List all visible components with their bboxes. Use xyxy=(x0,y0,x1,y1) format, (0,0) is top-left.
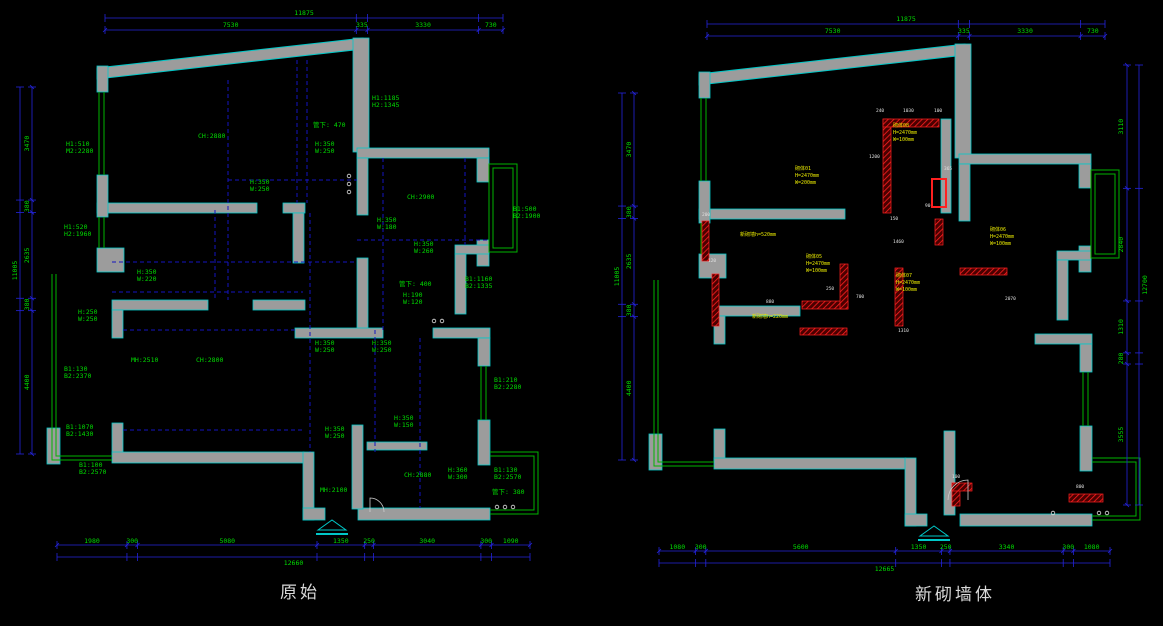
small-dim-tag: 1200 xyxy=(869,154,880,160)
small-dim-tag: 880 xyxy=(766,299,774,305)
wall-segment xyxy=(1079,164,1091,188)
wall-segment xyxy=(959,154,1091,164)
wall-segment xyxy=(955,44,971,158)
wall-segment xyxy=(97,203,257,213)
entry-door-symbol xyxy=(318,520,346,530)
new-wall-segment xyxy=(702,221,709,261)
exterior-wall-sloped xyxy=(699,44,965,85)
dimension-value: 12660 xyxy=(284,559,304,567)
annotation-label: H:350W:250 xyxy=(325,425,345,440)
new-wall-label: 砌体07H=2470mmW=100mm xyxy=(896,272,920,293)
small-dim-tag: 240 xyxy=(876,108,884,114)
dimension-value: 5600 xyxy=(793,543,809,551)
annotation-label: H:360W:300 xyxy=(448,466,468,481)
fixture-dot xyxy=(495,505,499,509)
dimension-value: 730 xyxy=(485,21,497,29)
wall-segment xyxy=(699,72,710,98)
fixture-dot xyxy=(1097,511,1101,515)
annotation-label: CH:2900 xyxy=(407,193,434,201)
balcony-line xyxy=(654,280,714,466)
small-dim-tag: 150 xyxy=(890,216,898,222)
dimension-value: 380 xyxy=(23,200,31,212)
small-dim-tag: 200 xyxy=(702,212,710,218)
annotation-label: MH:2510 xyxy=(131,356,158,364)
small-dim-tag: 1460 xyxy=(893,239,904,245)
dimension-value: 4400 xyxy=(625,380,633,396)
wall-segment xyxy=(353,38,369,152)
wall-segment xyxy=(1080,426,1092,471)
small-dim-tag: 365 xyxy=(944,166,952,172)
wall-segment xyxy=(1057,260,1068,320)
dimension-value: 300 xyxy=(126,537,138,545)
wall-segment xyxy=(699,209,845,219)
small-dim-tag: 250 xyxy=(826,286,834,292)
annotation-label: H:350W:220 xyxy=(137,268,157,283)
dimension-value: 2840 xyxy=(1117,237,1125,253)
balcony-line xyxy=(1092,458,1140,520)
annotation-label: 管下: 400 xyxy=(399,279,432,288)
exterior-wall-sloped xyxy=(97,38,363,79)
annotation-label: B1:1160B2:1335 xyxy=(465,275,492,290)
dimension-value: 2635 xyxy=(625,253,633,269)
new-wall-label: 新砌墙h=220mm xyxy=(752,313,788,320)
new-wall-segment xyxy=(883,119,891,213)
plan-title-original: 原始 xyxy=(240,578,360,603)
new-wall-label: 砌体05H=2470mmW=100mm xyxy=(806,253,830,274)
annotation-label: MH:2100 xyxy=(320,486,347,494)
wall-segment xyxy=(112,423,123,455)
wall-segment xyxy=(714,458,906,469)
dimension-value: 300 xyxy=(695,543,707,551)
dimension-value: 11005 xyxy=(11,261,19,281)
dimension-value: 3340 xyxy=(999,543,1015,551)
plan-title-newwalls: 新砌墙体 xyxy=(890,580,1020,605)
wall-segment xyxy=(295,328,383,338)
wall-segment xyxy=(905,514,927,526)
wall-segment xyxy=(433,328,490,338)
new-wall-segment xyxy=(712,274,719,326)
wall-segment xyxy=(959,164,970,221)
dimension-value: 11875 xyxy=(896,15,916,23)
dimension-value: 250 xyxy=(363,537,375,545)
new-wall-segment xyxy=(935,219,943,245)
dimension-value: 1080 xyxy=(1084,543,1100,551)
cad-drawing-canvas: 7530335333073011875347038026353804400110… xyxy=(0,0,1163,626)
wall-segment xyxy=(253,300,305,310)
dimension-value: 3555 xyxy=(1117,427,1125,443)
annotation-label: H:350W:250 xyxy=(315,140,335,155)
dimension-value: 11875 xyxy=(294,9,314,17)
dimension-value: 380 xyxy=(625,305,633,317)
annotation-label: CH:2800 xyxy=(196,356,223,364)
dimension-value: 4400 xyxy=(23,374,31,390)
fixture-dot xyxy=(347,174,351,178)
wall-segment xyxy=(357,158,368,215)
fixture-dot xyxy=(432,319,436,323)
wall-segment xyxy=(97,175,108,217)
dimension-value: 1090 xyxy=(503,537,519,545)
new-wall-segment xyxy=(800,328,847,335)
annotation-label: H:350W:180 xyxy=(377,216,397,231)
annotation-label: H:350W:260 xyxy=(414,240,434,255)
new-wall-segment xyxy=(952,483,972,491)
wall-segment xyxy=(1080,344,1092,372)
wall-segment xyxy=(283,203,305,213)
wall-segment xyxy=(478,420,490,465)
annotation-label: H:350W:250 xyxy=(372,339,392,354)
balcony-line xyxy=(658,280,714,462)
dimension-value: 730 xyxy=(1087,27,1099,35)
fixture-dot xyxy=(1105,511,1109,515)
dimension-value: 280 xyxy=(1117,353,1125,365)
annotation-label: CH:2880 xyxy=(198,132,225,140)
small-dim-tag: 100 xyxy=(934,108,942,114)
new-wall-label: 砌体06H=2470mmW=100mm xyxy=(990,226,1014,247)
annotation-label: B1:500B2:1900 xyxy=(513,205,540,220)
annotation-label: H:250W:250 xyxy=(78,308,98,323)
wall-segment xyxy=(303,508,325,520)
new-wall-label: 砌体01H=2470mmW=200mm xyxy=(795,165,819,186)
wall-segment xyxy=(112,452,304,463)
annotation-label: B1:130B2:2570 xyxy=(494,466,521,481)
small-dim-tag: 700 xyxy=(856,294,864,300)
annotation-label: H1:520H2:1960 xyxy=(64,223,91,238)
new-wall-segment xyxy=(883,119,939,127)
fixture-dot xyxy=(347,182,351,186)
fixture-dot xyxy=(503,505,507,509)
wall-segment xyxy=(367,442,427,450)
small-dim-tag: 1310 xyxy=(898,328,909,334)
annotation-label: H1:510M2:2280 xyxy=(66,140,93,155)
dimension-value: 335 xyxy=(958,27,970,35)
annotation-label: B1:1070B2:1430 xyxy=(66,423,93,438)
balcony-line xyxy=(490,452,538,514)
cad-screenshot: { "titles": { "left": "原始", "right": "新砌… xyxy=(0,0,1163,626)
annotation-label: H:190W:120 xyxy=(403,291,423,306)
wall-segment xyxy=(352,425,363,509)
wall-segment xyxy=(358,508,490,520)
dimension-value: 1080 xyxy=(669,543,685,551)
dimension-value: 5080 xyxy=(219,537,235,545)
wall-segment xyxy=(714,429,725,461)
fixture-dot xyxy=(511,505,515,509)
wall-segment xyxy=(357,148,489,158)
dimension-value: 7530 xyxy=(223,21,239,29)
wall-segment xyxy=(112,310,123,338)
annotation-label: H:350W:150 xyxy=(394,414,414,429)
dimension-value: 1310 xyxy=(1117,319,1125,335)
dimension-value: 335 xyxy=(356,21,368,29)
dimension-value: 3330 xyxy=(1017,27,1033,35)
wall-segment xyxy=(455,245,489,254)
dimension-value: 1980 xyxy=(84,537,100,545)
annotation-label: B1:210B2:2280 xyxy=(494,376,521,391)
drawing-content: 7530335333073011875347038026353804400110… xyxy=(11,9,1149,573)
dimension-value: 2635 xyxy=(23,247,31,263)
small-dim-tag: 120 xyxy=(708,258,716,264)
dimension-value: 3040 xyxy=(419,537,435,545)
annotation-label: 管下: 470 xyxy=(313,120,346,129)
entry-door-symbol xyxy=(920,526,948,536)
balcony-line xyxy=(1092,462,1136,516)
dimension-value: 250 xyxy=(940,543,952,551)
wall-segment xyxy=(293,213,304,263)
dimension-value: 11005 xyxy=(613,267,621,287)
wall-segment xyxy=(1035,334,1092,344)
annotation-label: H1:1185H2:1345 xyxy=(372,94,399,109)
wall-segment xyxy=(649,434,662,470)
wall-segment xyxy=(477,158,489,182)
annotation-label: H:350W:250 xyxy=(315,339,335,354)
dimension-value: 3110 xyxy=(1117,119,1125,135)
annotation-label: B1:100B2:2570 xyxy=(79,461,106,476)
new-wall-segment xyxy=(840,264,848,309)
wall-segment xyxy=(112,300,208,310)
small-dim-tag: 1030 xyxy=(903,108,914,114)
wall-segment xyxy=(357,258,368,330)
wall-segment xyxy=(97,248,124,272)
bay-window xyxy=(493,168,513,248)
wall-segment xyxy=(97,66,108,92)
dimension-value: 12700 xyxy=(1141,275,1149,295)
dimension-value: 380 xyxy=(625,206,633,218)
dimension-value: 3470 xyxy=(625,142,633,158)
dimension-value: 300 xyxy=(480,537,492,545)
annotation-label: H:350W:250 xyxy=(250,178,270,193)
new-wall-segment xyxy=(960,268,1007,275)
small-dim-tag: 800 xyxy=(1076,484,1084,490)
new-wall-label: 新砌墙h=520mm xyxy=(740,231,776,238)
dimension-value: 380 xyxy=(23,299,31,311)
dimension-value: 7530 xyxy=(825,27,841,35)
small-dim-tag: 2070 xyxy=(1005,296,1016,302)
dimension-value: 3330 xyxy=(415,21,431,29)
wall-segment xyxy=(960,514,1092,526)
fixture-dot xyxy=(440,319,444,323)
annotation-label: 管下: 380 xyxy=(492,487,525,496)
wall-segment xyxy=(1057,251,1091,260)
bay-window xyxy=(1095,174,1115,254)
fixture-dot xyxy=(347,190,351,194)
dimension-value: 3470 xyxy=(23,136,31,152)
small-dim-tag: 100 xyxy=(952,474,960,480)
wall-segment xyxy=(478,338,490,366)
dimension-value: 1350 xyxy=(333,537,349,545)
dimension-value: 12665 xyxy=(875,565,895,573)
dimension-value: 300 xyxy=(1062,543,1074,551)
annotation-label: B1:130B2:2370 xyxy=(64,365,91,380)
dimension-value: 1350 xyxy=(911,543,927,551)
annotation-label: CH:2880 xyxy=(404,471,431,479)
wall-segment xyxy=(47,428,60,464)
small-dim-tag: 90 xyxy=(925,203,931,209)
balcony-line xyxy=(490,456,534,510)
new-wall-segment xyxy=(1069,494,1103,502)
